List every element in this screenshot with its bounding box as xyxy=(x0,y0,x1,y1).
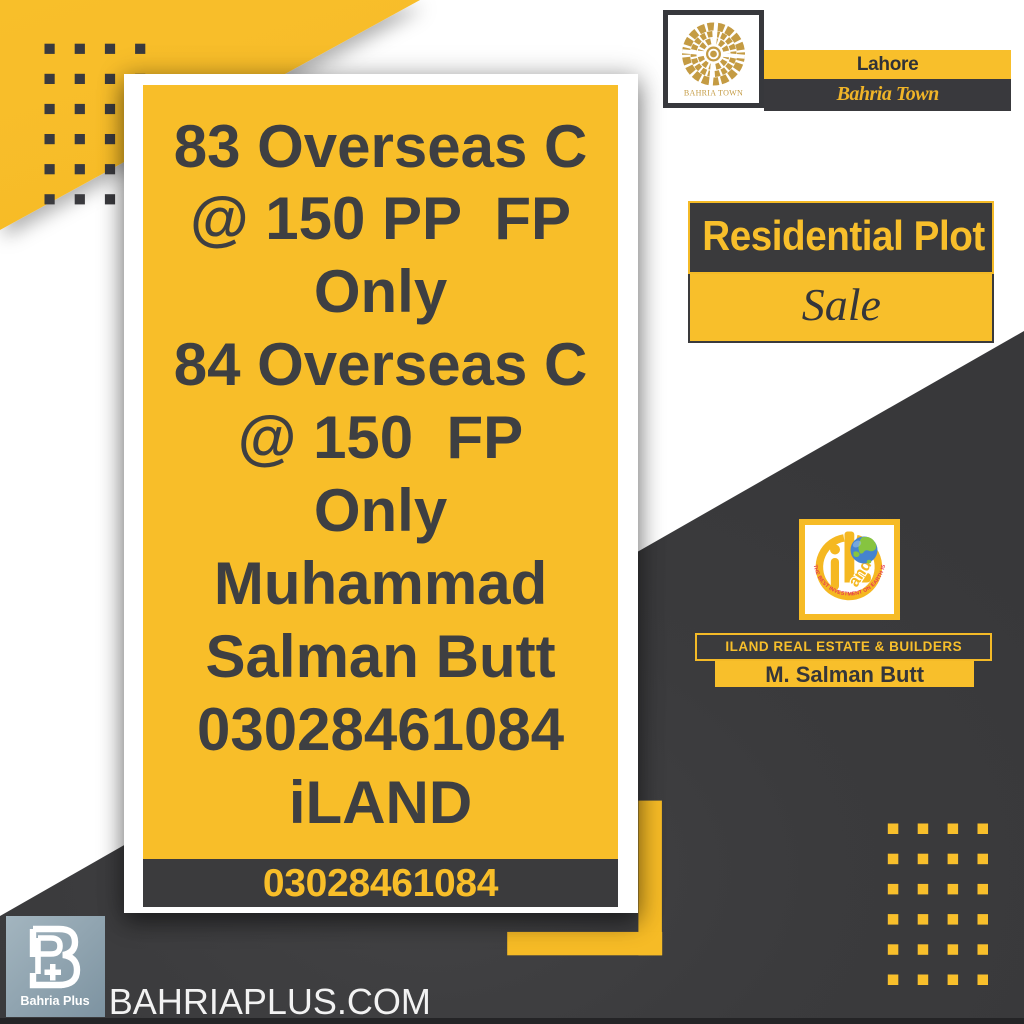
svg-text:Bahria Plus: Bahria Plus xyxy=(20,994,89,1008)
svg-text:BAHRIA TOWN: BAHRIA TOWN xyxy=(684,89,743,98)
